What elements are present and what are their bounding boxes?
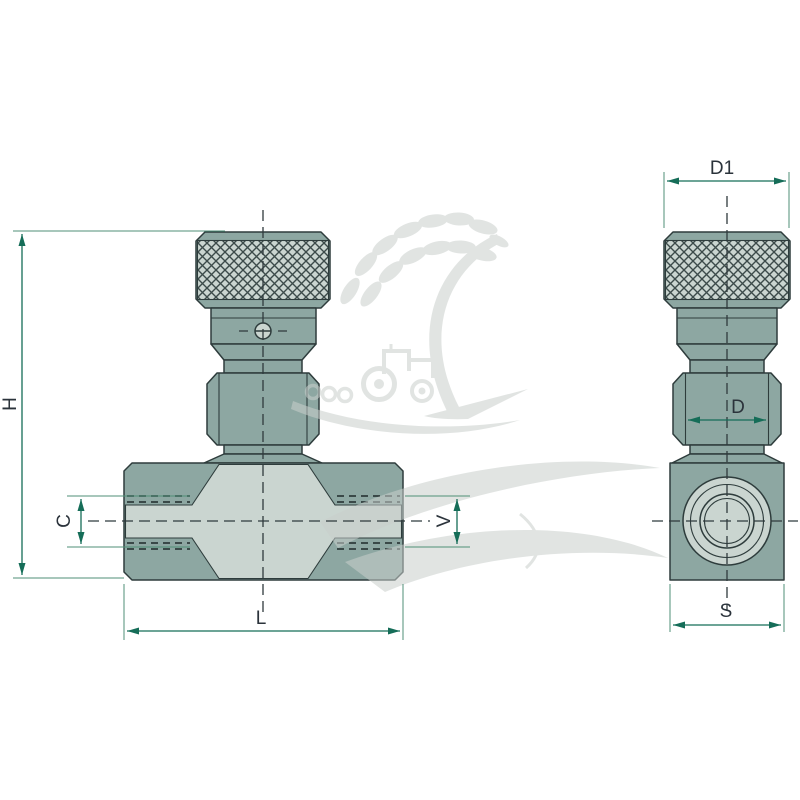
dim-label-S: S <box>720 601 733 622</box>
dim-label-L: L <box>256 608 267 629</box>
tractor-icon <box>291 344 520 434</box>
dim-label-C: C <box>54 514 75 528</box>
dim-label-V: V <box>434 514 455 527</box>
dim-label-H: H <box>0 397 21 411</box>
dim-label-D: D <box>731 397 745 418</box>
dim-label-D1: D1 <box>710 158 734 179</box>
drawing-canvas: H C L V D1 D S <box>0 0 800 800</box>
watermark-logo <box>291 212 668 592</box>
